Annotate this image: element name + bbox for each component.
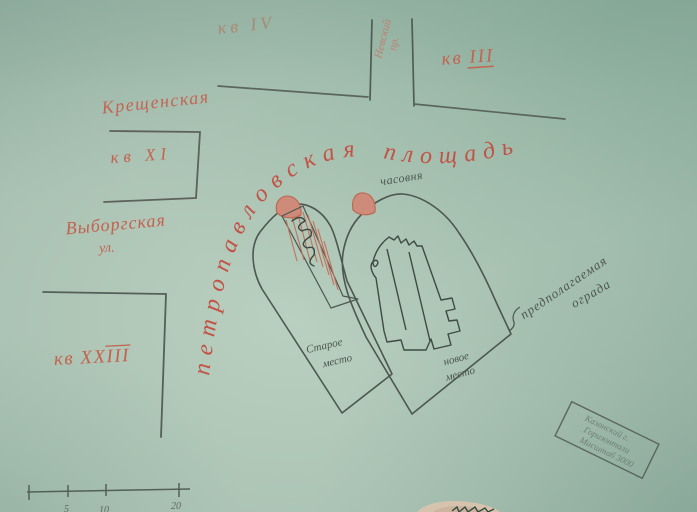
- svg-text:20: 20: [171, 501, 181, 512]
- svg-text:кв XXIII: кв XXIII: [53, 345, 130, 370]
- svg-text:5: 5: [64, 504, 69, 512]
- svg-text:ул.: ул.: [97, 240, 115, 256]
- svg-text:10: 10: [99, 505, 109, 512]
